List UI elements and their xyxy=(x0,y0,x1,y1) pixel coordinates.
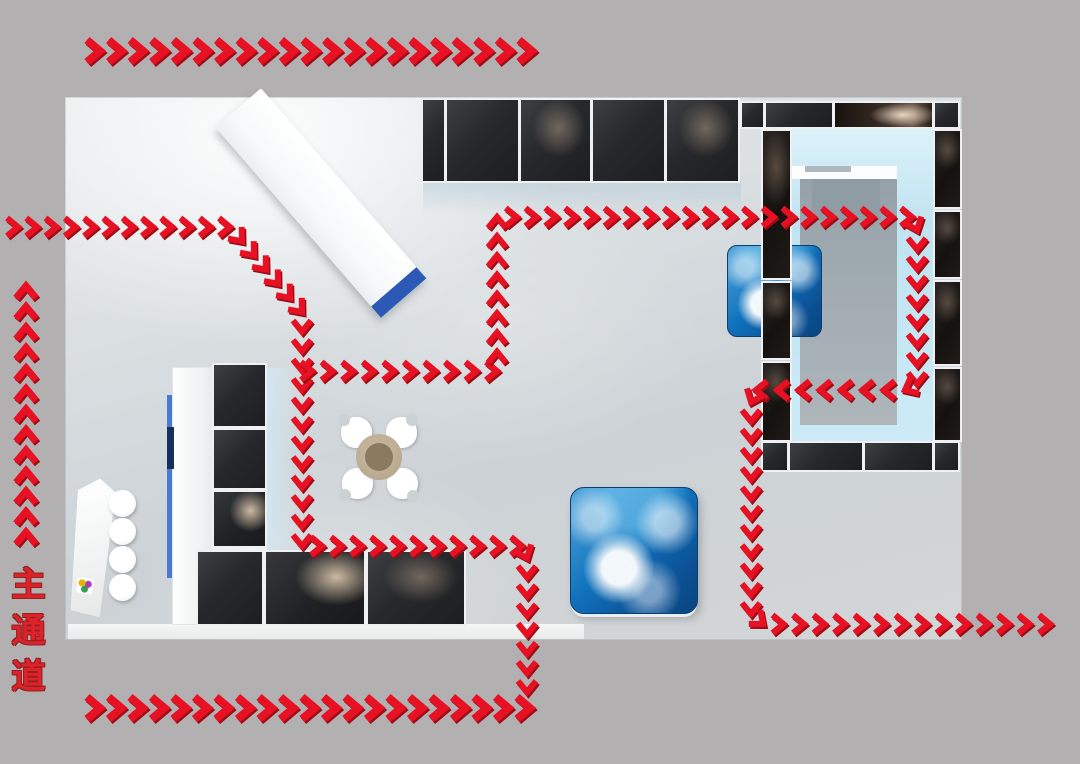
wall-panel xyxy=(935,443,958,470)
wall-floor-reflection xyxy=(423,181,741,215)
chair-notch xyxy=(338,414,350,426)
media-room-stage xyxy=(812,178,880,220)
chair-notch xyxy=(406,414,418,426)
interactive-touch-table-large[interactable] xyxy=(570,487,698,614)
stool xyxy=(109,490,136,517)
wall-panel-glossy xyxy=(835,103,932,127)
wall-panel xyxy=(763,443,787,470)
pillar-panel xyxy=(935,131,960,207)
booth-flow-diagram: 主通道 xyxy=(0,0,1080,764)
stool xyxy=(109,574,136,601)
wall-panel xyxy=(742,103,763,127)
pillar-panel xyxy=(763,131,790,278)
wall-panel xyxy=(790,443,862,470)
stool xyxy=(109,518,136,545)
media-room-counter xyxy=(792,166,897,179)
cabinet-panel xyxy=(214,365,265,426)
main-aisle-label: 主通道 xyxy=(6,566,50,716)
wall-panel xyxy=(423,100,444,181)
wall-panel xyxy=(766,103,832,127)
chair-notch xyxy=(339,489,351,501)
cabinet-panel xyxy=(214,430,265,488)
counter-notch xyxy=(805,166,851,172)
table-center xyxy=(365,443,393,471)
pillar-panel xyxy=(935,212,960,277)
wall-panel xyxy=(935,103,958,127)
cabinet-panel xyxy=(368,552,464,624)
pillar-panel xyxy=(763,283,790,358)
wall-panel xyxy=(521,100,590,181)
stool xyxy=(109,546,136,573)
pillar-panel xyxy=(935,369,960,440)
pillar-panel xyxy=(763,363,790,440)
round-meeting-table xyxy=(356,434,402,480)
wall-panel xyxy=(667,100,738,181)
cabinet-panel xyxy=(266,552,364,624)
wall-panel xyxy=(447,100,518,181)
cabinet-panel xyxy=(214,492,265,546)
cabinet-panel xyxy=(198,552,262,624)
wall-panel xyxy=(593,100,664,181)
chair-notch xyxy=(407,490,419,502)
desk-navy-accent xyxy=(167,427,174,469)
pillar-panel xyxy=(935,282,960,364)
cabinet-floor-reflection xyxy=(265,368,297,554)
floor-plinth xyxy=(68,624,584,639)
wall-panel xyxy=(865,443,932,470)
totem-logo xyxy=(76,577,94,595)
